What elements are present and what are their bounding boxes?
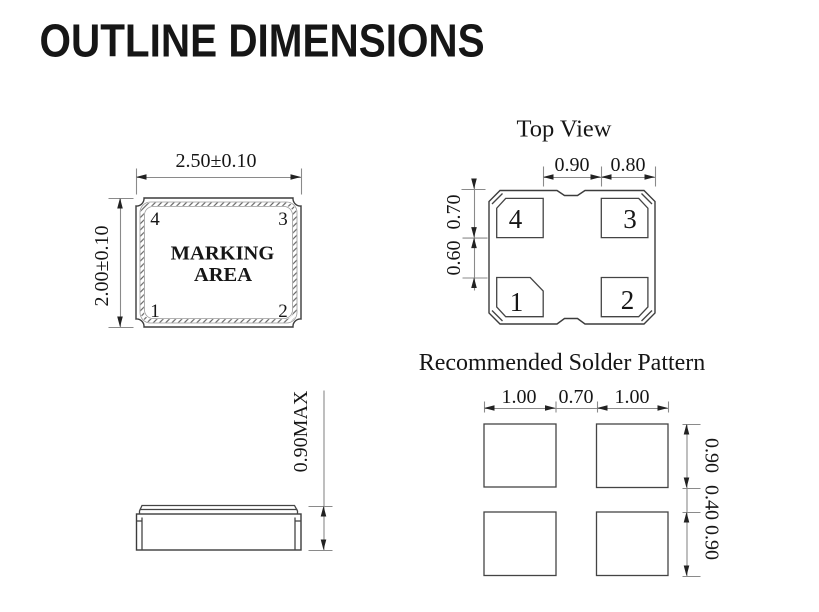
svg-text:0.40: 0.40: [701, 485, 723, 520]
svg-text:1: 1: [150, 301, 160, 322]
svg-text:0.90: 0.90: [701, 438, 723, 473]
svg-text:0.90MAX: 0.90MAX: [290, 390, 312, 472]
svg-text:0.70: 0.70: [559, 386, 594, 408]
svg-text:2.00±0.10: 2.00±0.10: [91, 226, 113, 307]
svg-text:2: 2: [621, 285, 635, 315]
svg-text:1: 1: [510, 287, 524, 317]
svg-text:4: 4: [150, 209, 160, 230]
svg-text:2: 2: [278, 301, 288, 322]
svg-text:OUTLINE DIMENSIONS: OUTLINE DIMENSIONS: [40, 16, 485, 67]
svg-text:AREA: AREA: [194, 264, 252, 286]
svg-text:0.80: 0.80: [611, 154, 646, 176]
svg-text:0.60: 0.60: [443, 241, 465, 276]
svg-text:4: 4: [509, 204, 523, 234]
svg-text:0.70: 0.70: [443, 195, 465, 230]
svg-text:1.00: 1.00: [502, 386, 537, 408]
svg-text:Top View: Top View: [516, 116, 611, 143]
svg-text:Recommended Solder Pattern: Recommended Solder Pattern: [419, 350, 706, 376]
svg-text:3: 3: [623, 204, 637, 234]
svg-text:0.90: 0.90: [555, 154, 590, 176]
svg-text:1.00: 1.00: [615, 386, 650, 408]
svg-text:3: 3: [278, 209, 288, 230]
svg-text:MARKING: MARKING: [171, 243, 275, 265]
svg-text:0.90: 0.90: [701, 525, 723, 560]
svg-text:2.50±0.10: 2.50±0.10: [176, 150, 257, 172]
